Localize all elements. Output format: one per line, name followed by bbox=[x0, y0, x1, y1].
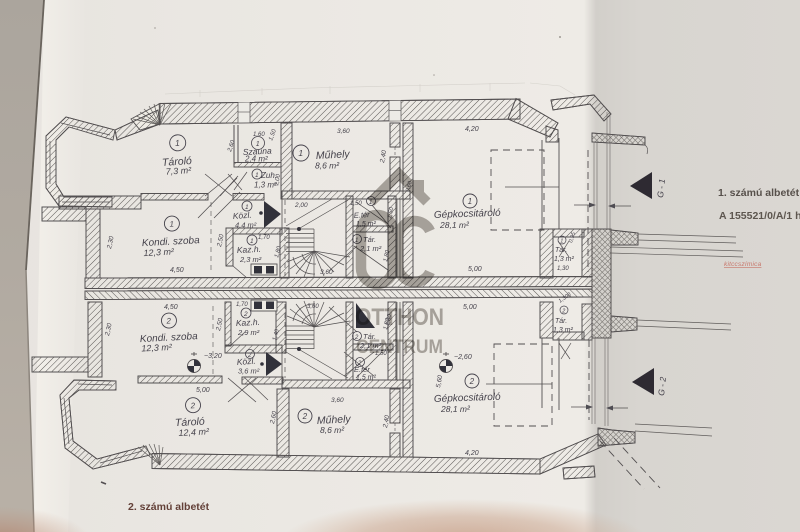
svg-text:Kaz.h.: Kaz.h. bbox=[236, 317, 261, 328]
svg-text:8,6 m²: 8,6 m² bbox=[315, 161, 340, 171]
svg-text:Gépkocsitároló: Gépkocsitároló bbox=[434, 392, 501, 405]
svg-text:1: 1 bbox=[468, 197, 472, 206]
svg-text:1,3 m²: 1,3 m² bbox=[554, 256, 575, 263]
svg-text:E.tér: E.tér bbox=[354, 365, 370, 374]
svg-text:G - 1: G - 1 bbox=[655, 178, 667, 198]
svg-text:1,3 m²: 1,3 m² bbox=[553, 327, 574, 334]
svg-text:A 155521/0/A/1 hrsz.: A 155521/0/A/1 hrsz. bbox=[719, 210, 800, 222]
svg-text:3,60: 3,60 bbox=[337, 128, 350, 135]
svg-text:1: 1 bbox=[298, 148, 303, 158]
svg-text:4,50: 4,50 bbox=[170, 267, 184, 274]
svg-text:3,60: 3,60 bbox=[307, 304, 319, 310]
svg-text:2: 2 bbox=[561, 308, 565, 314]
svg-text:1,70: 1,70 bbox=[258, 235, 270, 241]
svg-text:Közl.: Közl. bbox=[236, 356, 256, 367]
svg-text:3,60: 3,60 bbox=[320, 269, 333, 276]
svg-text:2,4 m²: 2,4 m² bbox=[244, 155, 268, 164]
svg-text:1,60: 1,60 bbox=[253, 132, 265, 138]
svg-text:12,3 m²: 12,3 m² bbox=[143, 246, 175, 258]
svg-text:−2,60: −2,60 bbox=[454, 354, 472, 361]
svg-text:3,60: 3,60 bbox=[331, 397, 344, 404]
svg-text:1,70: 1,70 bbox=[236, 302, 248, 308]
svg-text:5,00: 5,00 bbox=[468, 266, 482, 273]
svg-text:28,1 m²: 28,1 m² bbox=[439, 220, 470, 230]
svg-text:1,5 m²: 1,5 m² bbox=[356, 375, 377, 382]
svg-text:3,6 m²: 3,6 m² bbox=[238, 367, 260, 376]
svg-text:5,00: 5,00 bbox=[196, 387, 210, 394]
svg-text:4,20: 4,20 bbox=[465, 126, 479, 133]
svg-text:1: 1 bbox=[560, 238, 563, 244]
svg-text:1: 1 bbox=[255, 172, 259, 179]
svg-text:4,4 m²: 4,4 m² bbox=[235, 221, 257, 230]
svg-text:Tár.: Tár. bbox=[555, 318, 567, 325]
svg-text:2,9 m²: 2,9 m² bbox=[237, 328, 260, 337]
svg-text:28,1 m²: 28,1 m² bbox=[440, 404, 471, 414]
svg-text:2: 2 bbox=[302, 412, 308, 421]
svg-text:kitccszímica: kitccszímica bbox=[724, 261, 762, 268]
svg-text:1. számú albetét: 1. számú albetét bbox=[718, 187, 800, 199]
svg-text:Kaz.h.: Kaz.h. bbox=[237, 244, 262, 255]
svg-text:2,3 m²: 2,3 m² bbox=[239, 255, 262, 264]
svg-text:2: 2 bbox=[189, 401, 195, 410]
svg-text:Tár.: Tár. bbox=[555, 247, 567, 254]
svg-text:8,6 m²: 8,6 m² bbox=[320, 425, 345, 435]
svg-text:G - 2: G - 2 bbox=[656, 376, 668, 396]
svg-text:OTTHON: OTTHON bbox=[355, 304, 444, 331]
svg-text:1,50: 1,50 bbox=[350, 201, 362, 207]
svg-text:4,20: 4,20 bbox=[465, 450, 479, 457]
svg-text:12,3 m²: 12,3 m² bbox=[141, 342, 173, 354]
svg-text:1,30: 1,30 bbox=[557, 266, 569, 272]
svg-text:Gépkocsitároló: Gépkocsitároló bbox=[434, 208, 501, 221]
svg-text:Közl.: Közl. bbox=[232, 210, 252, 221]
svg-text:12,4 m²: 12,4 m² bbox=[178, 426, 210, 438]
svg-text:4,50: 4,50 bbox=[164, 304, 178, 311]
svg-text:−3,20: −3,20 bbox=[204, 353, 222, 360]
svg-text:1: 1 bbox=[169, 219, 174, 228]
svg-text:2: 2 bbox=[165, 316, 171, 325]
svg-text:CENTRUM: CENTRUM bbox=[356, 337, 443, 358]
svg-text:2. számú albetét: 2. számú albetét bbox=[128, 501, 210, 513]
svg-text:1: 1 bbox=[175, 138, 181, 148]
svg-text:7,3 m²: 7,3 m² bbox=[165, 165, 192, 177]
svg-text:2,00: 2,00 bbox=[294, 202, 308, 209]
svg-text:5,00: 5,00 bbox=[463, 304, 477, 311]
svg-text:2: 2 bbox=[469, 377, 475, 386]
